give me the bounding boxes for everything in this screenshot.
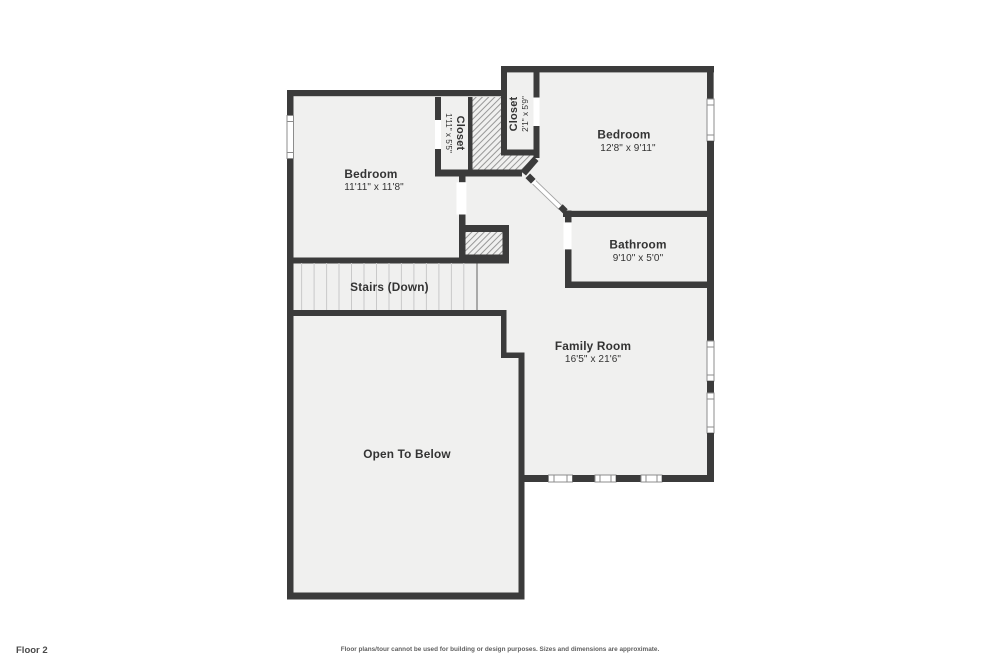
svg-text:Open To Below: Open To Below [363,447,451,461]
svg-text:Family Room: Family Room [555,339,631,353]
svg-text:Bedroom: Bedroom [597,128,650,142]
svg-text:9'10" x 5'0": 9'10" x 5'0" [613,253,664,264]
svg-text:Bedroom: Bedroom [344,167,397,181]
svg-text:Closet: Closet [454,116,466,151]
svg-text:Closet: Closet [508,96,520,131]
svg-text:12'8" x 9'11": 12'8" x 9'11" [600,143,656,154]
svg-text:1'11" x 5'5": 1'11" x 5'5" [444,113,453,153]
svg-text:11'11" x 11'8": 11'11" x 11'8" [344,182,404,193]
svg-text:Stairs (Down): Stairs (Down) [350,280,429,294]
svg-text:Bathroom: Bathroom [609,238,666,252]
svg-text:2'1" x 5'9": 2'1" x 5'9" [521,96,530,132]
svg-text:16'5" x 21'6": 16'5" x 21'6" [565,354,621,365]
